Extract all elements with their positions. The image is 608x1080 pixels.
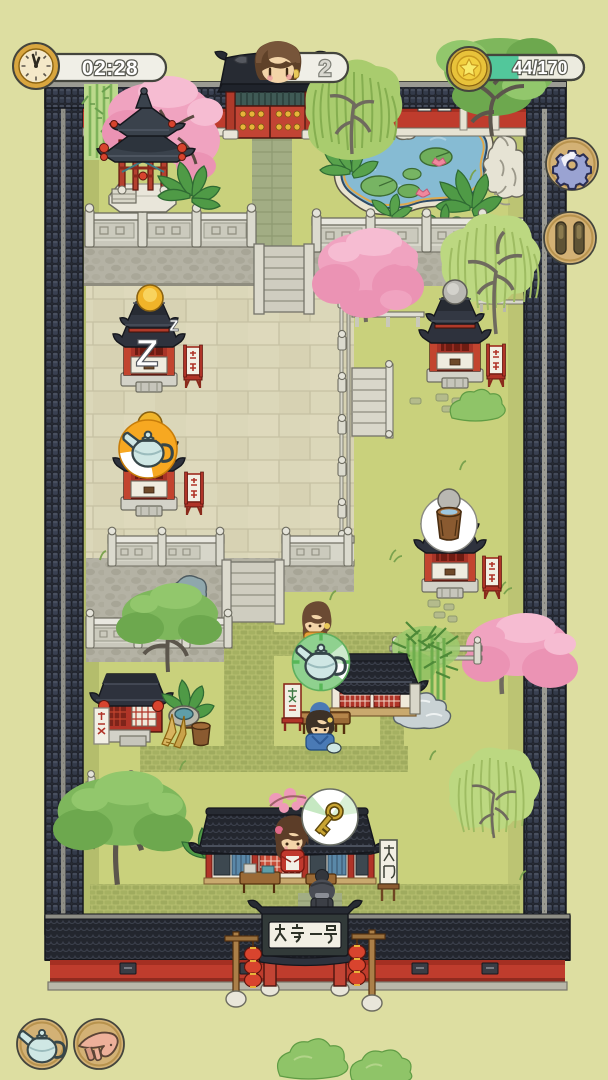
svg-text:44/170: 44/170 — [512, 58, 567, 78]
svg-text:Z: Z — [135, 333, 158, 375]
svg-text:2: 2 — [319, 55, 332, 81]
svg-text:02:28: 02:28 — [82, 57, 138, 80]
svg-text:z: z — [169, 314, 179, 336]
